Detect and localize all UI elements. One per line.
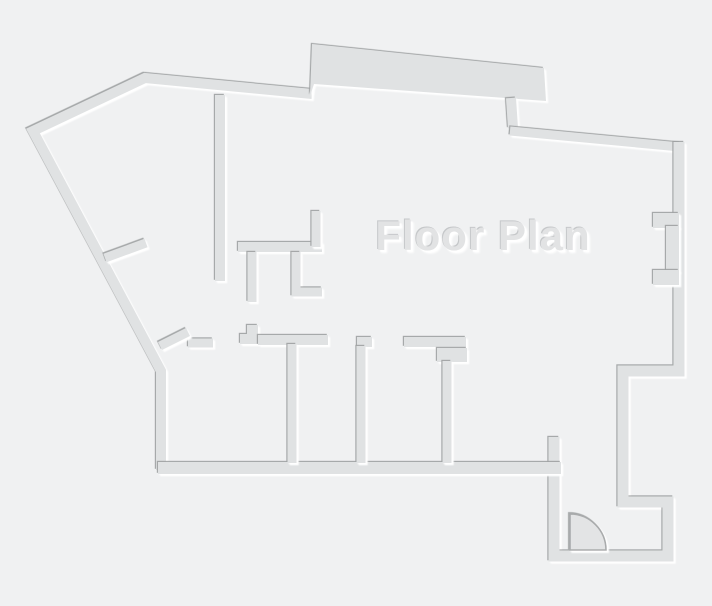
- east-wall-recess: [666, 226, 679, 272]
- east-and-entry-wall: [554, 142, 679, 556]
- core-l-wall: [296, 252, 322, 292]
- partition3-top-tab: [437, 348, 467, 362]
- floor-plan-canvas: Floor Plan: [0, 0, 712, 606]
- west-door-leaf-stub: [160, 332, 188, 346]
- northeast-diagonal-wall: [510, 131, 680, 147]
- northwest-door-leaf-stub: [105, 243, 146, 258]
- step-pier: [240, 325, 258, 344]
- exterior-west-and-north-wall: [33, 78, 312, 470]
- north-balcony-band: [310, 44, 546, 101]
- floor-plan-svg: [0, 0, 712, 606]
- entry-door-swing: [570, 514, 606, 550]
- east-wall-lower-jamb: [653, 270, 679, 285]
- north-jog-wall: [511, 98, 513, 128]
- east-wall-upper-jamb: [653, 213, 679, 228]
- walls-layer: [33, 44, 680, 556]
- floor-plan-title: Floor Plan: [375, 212, 590, 260]
